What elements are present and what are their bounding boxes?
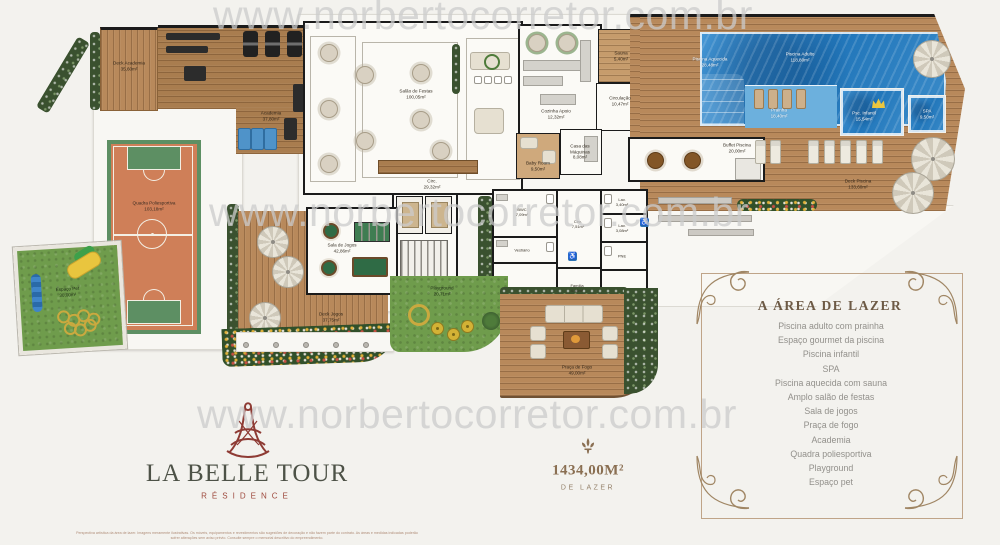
room-area: 3,40m² [616,202,628,207]
room-name: Praça de Fogo [562,364,592,370]
armchair-icon [530,344,546,359]
amenity-item: Praça de fogo [700,420,962,434]
label-quadra: Quadra Poliesportiva 103,18m² [125,200,183,211]
room-area: 5,40m² [614,56,628,62]
lower-terrace [236,332,394,352]
room-area: 49,00m² [562,370,592,376]
wheelchair-access-icon: ♿ [640,218,649,227]
fire-pit-flame-icon [571,335,580,343]
terrace-post [273,342,279,348]
room-area: 20,00m² [715,148,759,154]
total-area-label: DE LAZER [561,485,615,492]
room-area: 7,09m² [516,212,528,217]
hedge-deck-academia [90,32,100,110]
in-water-lounger-icon [754,89,764,109]
room-name: Deck Jogos [319,311,343,317]
chair-icon [484,76,492,84]
gym-machine-icon [284,118,297,140]
room-area: 9,50m² [920,114,934,120]
label-circulacao: Circulação 10,47m² [600,95,640,106]
amenity-item: Academia [700,435,962,449]
fridge-icon [580,40,591,82]
amenity-item: Amplo salão de festas [700,392,962,406]
room-area: 37,80m² [261,116,281,122]
amenities-list: Piscina adulto com prainha Espaço gourme… [700,321,962,491]
spinner-toy-icon [447,328,460,341]
room-area: 118,80m² [786,57,815,63]
armchair-icon [530,326,546,341]
label-spa: SPA 9,50m² [920,108,934,119]
brand-subtitle: RÉSIDENCE [201,492,293,501]
bench-icon [688,229,754,236]
in-water-lounger-icon [796,89,806,109]
room-name: Vestiário [514,248,529,253]
hedge-plaza-right [624,288,658,394]
umbrella-icon [892,172,934,214]
label-deck-jogos: Deck Jogos 37,75m² [319,311,343,322]
amenity-item: Sala de jogos [700,406,962,420]
room-area: 133,60m² [845,184,872,190]
round-table-icon [412,111,430,129]
foosball-table-icon [354,222,390,242]
room-area: 10,47m² [600,101,640,107]
room-area: 15,54m² [852,116,876,122]
bench-icon [658,215,752,222]
room-name: Playground [430,285,453,291]
hedge-hall-divider [452,44,460,94]
room-area: 12,32m² [533,114,579,120]
hedge-topleft-diagonal [36,36,90,113]
inner-wall [492,236,558,238]
round-table-icon [320,100,338,118]
chair-icon [504,76,512,84]
flourish-corner-icon [899,266,961,328]
treadmill-icon [287,31,302,57]
amenities-title: A ÁREA DE LAZER [758,298,902,314]
label-salao-festas: Salão de Festas 100,05m² [391,88,441,99]
inner-wall [600,241,648,243]
amenity-item: Quadra poliesportiva [700,449,962,463]
sun-lounger-icon [840,140,851,164]
wreath-decor-icon [484,54,500,70]
kitchen-island [540,94,576,105]
label-bwc: BWC 7,09m² [516,207,528,217]
goal-area-top [127,146,181,170]
room-name: Prainha [771,107,788,113]
amenity-item: Piscina aquecida com sauna [700,378,962,392]
room-name: Piscina Adulto [786,51,815,57]
pet-area: Espaço Pet 30,00m² [13,241,127,355]
label-piscina-adulto: Piscina Adulto 118,80m² [786,51,815,62]
wheelchair-access-icon: ♿ [568,252,577,261]
room-name: Sala de Jogos [321,242,363,248]
sofa-icon [545,305,603,323]
round-table-icon [432,142,450,160]
label-psc-infantil: Psc. Infantil 15,54m² [852,110,876,121]
round-table-icon [320,44,338,62]
label-vestiario: Vestiário [514,248,529,253]
bench-press-icon [184,66,206,81]
room-area: 29,32m² [424,184,441,190]
room-name: PNE [618,254,626,259]
goal-area-bottom [127,300,181,324]
room-name: Sauna [614,50,628,56]
room-name: Psc. Infantil [852,110,876,116]
sun-lounger-icon [770,140,781,164]
room-area: 20,71m² [430,291,453,297]
room-name: Casa das Máquinas [563,143,597,154]
label-deck-piscina: Deck Piscina 133,60m² [845,178,872,189]
treadmill-icon [265,31,280,57]
exercise-mat-icon [264,128,277,150]
label-lav1: Lav. 3,40m² [616,197,628,207]
amenity-item: Playground [700,463,962,477]
room-area: 37,75m² [319,317,343,323]
sun-lounger-icon [872,140,883,164]
spinner-toy-icon [431,322,444,335]
round-table-icon [320,155,338,173]
bistro-table-icon [558,34,576,52]
elevator-cab [402,202,419,228]
umbrella-icon [257,226,289,258]
room-name: Deck Academia [107,60,151,66]
label-pne: PNE [618,254,626,259]
amenity-item: Piscina adulto com prainha [700,321,962,335]
inner-wall [556,267,602,269]
terrace-post [303,342,309,348]
adult-pool-steps [702,74,744,124]
toilet-icon [546,194,554,204]
eiffel-tower-logo-icon [221,401,275,459]
label-familia: Família 4,46m² [570,283,583,293]
room-area: 35,60m² [107,66,151,72]
flower-bed [737,199,817,211]
label-sauna: Sauna 5,40m² [614,50,628,61]
room-area: 18,40m² [771,113,788,119]
sink-icon [496,194,508,201]
room-area: 7,51m² [572,224,584,229]
dining-table-icon [684,152,701,169]
inner-wall [492,262,558,264]
dining-table-icon [647,152,664,169]
chair-icon [494,76,502,84]
inner-wall [600,269,648,271]
label-circ-core: Circ. 7,51m² [572,219,584,229]
exercise-mat-icon [251,128,264,150]
bench-icon [658,197,732,204]
room-name: Academia [261,110,281,116]
toilet-icon [604,246,612,256]
elevator-cab [431,202,448,228]
label-buffet-piscina: Buffet Piscina 20,00m² [715,142,759,153]
disclaimer-text: Perspectiva artística da área de lazer. … [75,531,420,541]
card-table-icon [321,260,337,276]
in-water-lounger-icon [768,89,778,109]
umbrella-icon [272,256,304,288]
label-deck-academia: Deck Academia 35,60m² [107,60,151,71]
chair-icon [474,76,482,84]
brand-name: LA BELLE TOUR [146,460,348,488]
bistro-table-icon [528,34,546,52]
corridor-bench [378,160,478,174]
room-area: 100,05m² [391,94,441,100]
toilet-icon [546,242,554,252]
label-academia: Academia 37,80m² [261,110,281,121]
kitchen-counter [523,60,581,71]
room-area: 9,50m² [520,166,556,172]
sun-lounger-icon [808,140,819,164]
armchair-icon [602,344,618,359]
room-area: 42,86m² [321,248,363,254]
label-playground: Playground 20,71m² [430,285,453,296]
court-center-dot [151,233,154,236]
terrace-post [363,342,369,348]
total-area-value: 1434,00M² [552,463,624,480]
sun-lounger-icon [856,140,867,164]
play-ring-icon [408,304,430,326]
room-area: 28,48m² [683,62,737,68]
round-table-icon [356,132,374,150]
room-area: 8,08m² [563,155,597,161]
sink-icon [496,240,508,247]
armchair-icon [602,326,618,341]
label-sala-jogos: Sala de Jogos 42,86m² [321,242,363,253]
room-area: 3,08m² [616,228,628,233]
label-casa-maquinas: Casa das Máquinas 8,08m² [563,143,597,160]
amenity-item: Espaço gourmet da piscina [700,335,962,349]
round-table-icon [356,66,374,84]
lounge-set [474,108,504,134]
fleur-de-lis-icon [581,438,595,454]
amenity-item: SPA [700,364,962,378]
round-table-icon [412,64,430,82]
watermark-text: www.norbertocorretor.com.br [197,391,737,438]
amenity-item: Piscina infantil [700,349,962,363]
room-area: 4,46m² [570,288,583,293]
label-circ-salao: Circ. 29,32m² [424,178,441,189]
kitchen-counter [523,76,563,86]
toilet-icon [604,218,612,228]
umbrella-icon [913,40,951,78]
toilet-icon [604,194,612,204]
label-lav2: Lav. 3,08m² [616,223,628,233]
snooker-table-icon [352,257,388,277]
terrace-post [333,342,339,348]
spinner-toy-icon [461,320,474,333]
room-area: 103,18m² [125,206,183,212]
inner-wall [600,213,648,215]
room-name: Deck Piscina [845,178,872,184]
exercise-mat-icon [238,128,251,150]
label-baby-room: Baby Room 9,50m² [520,160,556,171]
label-cozinha-apoio: Cozinha Apoio 12,32m² [533,108,579,119]
card-table-icon [323,223,339,239]
dumbbell-rack-icon [166,46,208,53]
sun-lounger-icon [824,140,835,164]
label-espaco-pet: Espaço Pet 30,00m² [56,286,80,299]
room-name: Quadra Poliesportiva [125,200,183,206]
leisure-floor-plan-page: ♿ ♿ [0,0,1000,545]
in-water-lounger-icon [782,89,792,109]
label-piscina-aquecida: Piscina Aquecida 28,48m² [683,56,737,67]
baby-room-furniture [520,137,538,149]
terrace-post [243,342,249,348]
label-prainha: Prainha 18,40m² [771,107,788,118]
amenity-item: Espaço pet [700,477,962,491]
treadmill-icon [243,31,258,57]
tree-icon [482,312,500,330]
dumbbell-rack-icon [166,33,220,40]
label-praca-fogo: Praça de Fogo 49,00m² [562,364,592,375]
flourish-corner-icon [693,266,755,328]
